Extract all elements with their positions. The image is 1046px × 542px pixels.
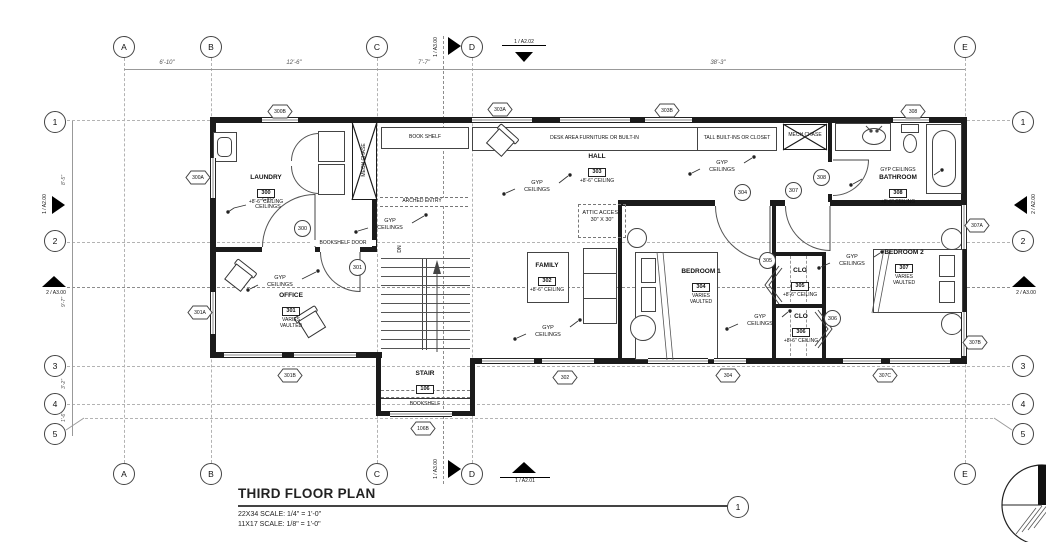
toilet-tank (901, 124, 919, 133)
section-marker-label-left-a200: 1 / A2.00 (42, 182, 48, 226)
stair-tread (381, 330, 470, 331)
section-marker-label-left-a300: 2 / A3.00 (30, 290, 82, 296)
bedroom1-nightstand (630, 315, 656, 341)
family-shelf-divider (583, 298, 617, 299)
window-family-bottom-1 (482, 358, 534, 364)
window-bedroom2-bottom-1 (843, 358, 881, 364)
room-note: +8'-6" CEILING (862, 200, 934, 206)
wall-closet-mid (772, 304, 826, 308)
gyp-note-hall-left: GYPCEILINGS (515, 180, 559, 193)
north-arrow-icon (1002, 465, 1046, 542)
grid-bubble-4-right: 4 (1012, 393, 1034, 415)
grid-bubble-1-left: 1 (44, 111, 66, 133)
room-number: 106 (416, 385, 433, 393)
ceilings-text: CEILINGS (747, 321, 773, 327)
room-note: +8'-6" CEILING (780, 293, 820, 299)
grid-bubble-a-top: A (113, 36, 135, 58)
washer (318, 131, 345, 162)
section-marker-label-top: 1 / A3.00 (433, 25, 439, 69)
grid-bubble-1-right: 1 (1012, 111, 1034, 133)
window-bedroom1-bottom-2 (714, 358, 746, 364)
section-marker-arrow-bottom (448, 460, 461, 478)
grid-bubble-2-right: 2 (1012, 230, 1034, 252)
stair-landing-line (381, 397, 470, 398)
dim-line-left (72, 121, 73, 436)
room-note: VAULTED (256, 324, 326, 330)
room-number: 301 (282, 307, 299, 315)
room-name: CLO (781, 313, 821, 320)
dim-2-3: 9'-7" (61, 282, 67, 322)
dim-1-2: 8'-5" (61, 160, 67, 200)
dim-c-d: 7'-7" (394, 60, 454, 66)
grid-5-leaders (66, 418, 1012, 430)
grid-line-row-3 (67, 366, 1010, 367)
room-number: 305 (791, 282, 808, 290)
wall-stair-left (376, 352, 381, 416)
grid-line-col-a (124, 58, 125, 463)
elevation-marker-label-a201: 1 / A2.01 (500, 477, 550, 484)
wall-laundry-bottom-1 (210, 247, 262, 252)
grid-bubble-c-bottom: C (366, 463, 388, 485)
room-note: VAULTED (866, 281, 942, 287)
ceilings-text: CEILINGS (377, 225, 403, 231)
dim-line-top (124, 69, 965, 70)
section-marker-label-bottom: 1 / A3.00 (433, 447, 439, 491)
room-note: +8'-6" CEILING (781, 339, 821, 345)
window-tag-308: 308 (900, 104, 926, 119)
arched-entry-label: ARCHED ENTRY (390, 198, 454, 204)
window-tag-301A: 301A (187, 305, 213, 320)
wall-bathroom-left-lower (828, 194, 832, 202)
window-tag-300B: 300B (267, 104, 293, 119)
grid-bubble-b-bottom: B (200, 463, 222, 485)
dim-b-c: 12'-6" (264, 60, 324, 66)
stair-tread (381, 276, 470, 277)
room-label-office: OFFICE 301 VARIES VAULTED (256, 292, 326, 329)
room-number: 303 (588, 168, 605, 176)
section-marker-label-right-a200: 2 / A2.00 (1031, 182, 1037, 226)
attic-access-label: ATTIC ACCESS30" X 30" (578, 210, 626, 223)
bathtub-basin (932, 130, 956, 187)
stair-tread (381, 348, 470, 349)
room-name: FAMILY (512, 262, 582, 269)
door-swing-307 (785, 206, 830, 251)
wall-bathroom-left-upper (828, 117, 832, 162)
attic-size-text: 30" X 30" (591, 217, 614, 223)
grid-bubble-e-bottom: E (954, 463, 976, 485)
laundry-sink-basin (217, 137, 232, 157)
room-label-stair: STAIR 106 (400, 370, 450, 396)
window-tag-303A: 303A (487, 102, 513, 117)
room-label-bedroom2: BEDROOM 2 307 VARIES VAULTED (866, 249, 942, 286)
section-marker-arrow-right-a300 (1012, 276, 1036, 287)
bathroom-sink (862, 128, 886, 145)
room-name: STAIR (400, 370, 450, 377)
grid-bubble-c-top: C (366, 36, 388, 58)
section-marker-arrow-top (448, 37, 461, 55)
wall-closet-top (772, 252, 826, 256)
section-marker-label-right-a300: 2 / A3.00 (1000, 290, 1046, 296)
bedroom1-pillow (641, 287, 656, 312)
grid-line-row-4 (67, 404, 1010, 405)
window-hall-top-2 (560, 117, 630, 123)
room-label-clo306: CLO 306 +8'-6" CEILING (781, 313, 821, 345)
family-shelf-divider (583, 273, 617, 274)
ceilings-text: CEILINGS (255, 204, 281, 210)
room-name: BEDROOM 1 (663, 268, 739, 275)
attic-access-text: ATTIC ACCESS (582, 210, 621, 216)
room-number: 302 (538, 277, 555, 285)
room-name: HALL (562, 153, 632, 160)
grid-line-row-2 (67, 242, 1010, 243)
bedroom1-nightstand (627, 228, 647, 248)
stair-tread (381, 312, 470, 313)
section-marker-arrow-right-a200 (1014, 196, 1027, 214)
grid-bubble-4-left: 4 (44, 393, 66, 415)
window-bedroom1-bottom-1 (648, 358, 708, 364)
stair-tread (381, 321, 470, 322)
desk-area-label: DESK AREA FURNITURE OR BUILT-IN (472, 135, 717, 141)
room-label-family: FAMILY 302 +8'-6" CEILING (512, 262, 582, 294)
grid-bubble-a-bottom: A (113, 463, 135, 485)
gyp-text: GYP (531, 180, 543, 186)
grid-bubble-e-top: E (954, 36, 976, 58)
family-shelves (583, 248, 617, 324)
grid-bubble-d-bottom: D (461, 463, 483, 485)
door-tag-300: 300 (294, 220, 311, 237)
stair-tread (381, 267, 470, 268)
window-family-bottom-2 (542, 358, 594, 364)
window-stair-bottom (390, 411, 452, 417)
washer-door-swing (291, 133, 319, 161)
bookshelf-door-label: BOOKSHELF DOOR (310, 240, 376, 246)
tall-builtins-label: TALL BUILT-INS OR CLOSET (697, 135, 777, 141)
window-office-bottom-2 (294, 352, 356, 358)
bedroom2-nightstand (941, 313, 963, 335)
stair-tread (381, 258, 470, 259)
bedroom1-pillow (641, 258, 656, 283)
gyp-text: GYP (542, 325, 554, 331)
ceilings-text: CEILINGS (535, 332, 561, 338)
room-note: +8'-6" CEILING (512, 288, 582, 294)
room-number: 306 (792, 328, 809, 336)
window-tag-300A: 300A (185, 170, 211, 185)
room-name: BEDROOM 2 (866, 249, 942, 256)
door-tag-307: 307 (785, 182, 802, 199)
dim-d-e: 38'-3" (688, 60, 748, 66)
gyp-note-landing: GYPCEILINGS (368, 218, 412, 231)
wall-stair-right (470, 358, 475, 416)
wall-laundry-bottom-3 (360, 247, 377, 252)
detail-number-bubble: 1 (727, 496, 749, 518)
door-tag-305: 305 (759, 252, 776, 269)
grid-bubble-2-left: 2 (44, 230, 66, 252)
door-tag-301: 301 (349, 259, 366, 276)
room-label-bathroom: GYP CEILINGS BATHROOM 308 +8'-6" CEILING (862, 168, 934, 205)
grid-bubble-3-right: 3 (1012, 355, 1034, 377)
gyp-text: GYP (754, 314, 766, 320)
section-marker-arrow-left-a200 (52, 196, 65, 214)
elevation-marker-arrow-a201 (512, 462, 536, 473)
elevation-marker-arrow-a202 (515, 52, 533, 62)
arched-entry-line-2 (380, 206, 468, 207)
grid-line-row-5 (85, 418, 993, 419)
stair-stringer (426, 258, 427, 350)
wall-bedroom1-top-1 (620, 200, 715, 206)
floor-plan-sheet: 6'-10" 12'-6" 7'-7" 38'-3" 8'-5" 9'-7" 3… (0, 0, 1046, 542)
drawing-title: THIRD FLOOR PLAN (238, 486, 376, 501)
gyp-note-laundry: GYPCEILINGS (246, 197, 290, 210)
grid-bubble-b-top: B (200, 36, 222, 58)
grid-bubble-5-right: 5 (1012, 423, 1034, 445)
gyp-note-office: GYPCEILINGS (258, 275, 302, 288)
bedroom2-nightstand (941, 228, 963, 250)
stair-stringer (422, 258, 423, 350)
toilet-bowl (903, 134, 917, 153)
grid-bubble-5-left: 5 (44, 423, 66, 445)
dim-a-b: 6'-10" (137, 60, 197, 66)
scale-note-11x17: 11X17 SCALE: 1/8" = 1'-0" (238, 521, 321, 528)
gyp-text: GYP (262, 197, 274, 203)
window-tag-307B: 307B (962, 335, 988, 350)
ceilings-text: CEILINGS (839, 261, 865, 267)
gyp-note-family: GYPCEILINGS (526, 325, 570, 338)
window-tag-307A: 307A (964, 218, 990, 233)
door-tag-306: 306 (824, 310, 841, 327)
ceilings-text: CEILINGS (709, 167, 735, 173)
door-tag-304: 304 (734, 184, 751, 201)
room-number: 307 (895, 264, 912, 272)
room-number: 308 (889, 189, 906, 197)
mech-chase-label-1: MECH CHASE (361, 130, 367, 190)
grid-bubble-d-top: D (461, 36, 483, 58)
door-tag-308: 308 (813, 169, 830, 186)
wall-bedroom1-right (772, 200, 776, 358)
gyp-note-hall-right: GYPCEILINGS (700, 160, 744, 173)
window-tag-302: 302 (552, 370, 578, 385)
room-label-hall: HALL 303 +8'-6" CEILING (562, 153, 632, 185)
room-label-clo305: CLO 305 +8'-6" CEILING (780, 267, 820, 299)
scale-note-22x34: 22X34 SCALE: 1/4" = 1'-0" (238, 511, 321, 518)
room-name: OFFICE (256, 292, 326, 299)
room-name: CLO (780, 267, 820, 274)
room-note: VAULTED (663, 300, 739, 306)
room-name: BATHROOM (862, 174, 934, 181)
gyp-text: GYP (384, 218, 396, 224)
window-tag-106B: 106B (410, 421, 436, 436)
book-shelf-label: BOOK SHELF (381, 134, 469, 140)
stair-dn-label: DN (397, 237, 403, 261)
room-label-bedroom1: BEDROOM 1 304 VARIES VAULTED (663, 268, 739, 305)
title-underline (238, 505, 730, 507)
wall-nook-top (775, 200, 785, 206)
window-tag-303B: 303B (654, 103, 680, 118)
room-note: +8'-6" CEILING (562, 179, 632, 185)
gyp-note-closets: GYPCEILINGS (830, 254, 874, 267)
stair-tread (381, 294, 470, 295)
dryer (318, 164, 345, 195)
gyp-text: GYP (846, 254, 858, 260)
room-number: 304 (692, 283, 709, 291)
stair-tread (381, 303, 470, 304)
window-tag-307C: 307C (872, 368, 898, 383)
ceilings-text: CEILINGS (524, 187, 550, 193)
window-tag-301B: 301B (277, 368, 303, 383)
stair-tread (381, 285, 470, 286)
bookshelf-line (378, 398, 472, 399)
gyp-text: GYP (274, 275, 286, 281)
window-bedroom2-bottom-2 (890, 358, 950, 364)
stair-tread (381, 339, 470, 340)
gyp-text: GYP (716, 160, 728, 166)
gyp-note-bedroom1: GYPCEILINGS (738, 314, 782, 327)
bookshelf-label: BOOKSHELF (394, 401, 456, 407)
grid-bubble-3-left: 3 (44, 355, 66, 377)
room-name: LAUNDRY (231, 174, 301, 181)
window-tag-304: 304 (715, 368, 741, 383)
window-office-bottom-1 (224, 352, 282, 358)
mech-chase-label-2: MECH CHASE (783, 132, 827, 138)
wall-closet-right (822, 252, 826, 362)
section-marker-arrow-left-a300 (42, 276, 66, 287)
ceilings-text: CEILINGS (267, 282, 293, 288)
elevation-marker-label-a202: 1 / A2.02 (502, 39, 546, 46)
window-hall-top-1 (472, 117, 532, 123)
